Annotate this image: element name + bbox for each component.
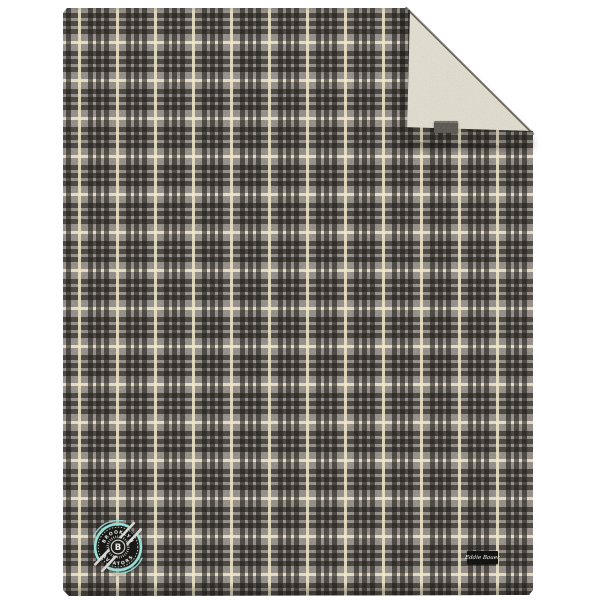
blanket-front-plaid <box>0 0 600 600</box>
brand-label: Eddie Bauer <box>467 551 498 564</box>
brand-patch: BROOKLYN AVIATORS B <box>86 515 150 579</box>
brand-label-text: Eddie Bauer <box>465 555 500 561</box>
patch-monogram: B <box>115 543 121 553</box>
product-photo: BROOKLYN AVIATORS B Eddie Bauer <box>0 0 600 600</box>
fold-tag-label <box>434 121 458 133</box>
